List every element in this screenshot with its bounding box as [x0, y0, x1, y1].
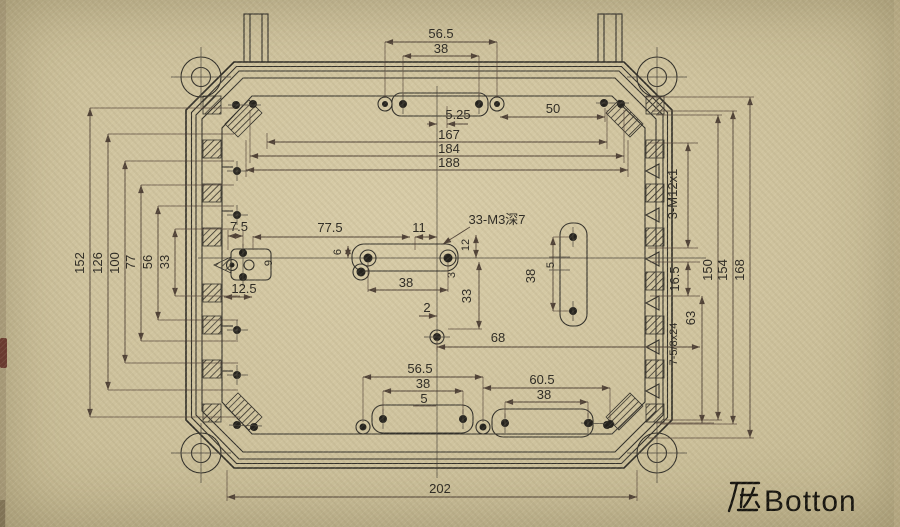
- dim-bottom-56-5: 56.5: [407, 361, 432, 376]
- screw-boss: [222, 320, 248, 340]
- dim-top-167: 167: [438, 127, 460, 142]
- dim-center-77-5: 77.5: [317, 220, 342, 235]
- bottom-wall-slots: [356, 405, 614, 437]
- dim-left-56: 56: [140, 255, 155, 269]
- dim-left-77: 77: [123, 255, 138, 269]
- center-slot: [352, 244, 458, 344]
- dim-right-150: 150: [700, 259, 715, 281]
- mounting-tab: [244, 14, 268, 62]
- callout-m3: 33-M3深7: [468, 212, 525, 227]
- mounting-ear: [171, 47, 231, 107]
- right-slot-dimensions: 38 5: [523, 237, 569, 311]
- dim-bracket-12-5: 12.5: [231, 281, 256, 296]
- dim-top-184: 184: [438, 141, 460, 156]
- dim-top-38: 38: [434, 41, 448, 56]
- dim-bracket-7-5: 7.5: [230, 219, 248, 234]
- center-dimensions: 77.5 11 33-M3深7 12 3 38 6 2 33 68: [253, 212, 700, 352]
- dim-center-68: 68: [491, 330, 505, 345]
- caption-text: Botton: [764, 485, 857, 518]
- dim-center-6: 6: [332, 249, 344, 255]
- dim-top-56-5: 56.5: [428, 26, 453, 41]
- mounting-tab: [598, 14, 622, 62]
- callout-gland: 7-5/8x24: [668, 323, 680, 366]
- dim-top-50: 50: [546, 101, 560, 116]
- mounting-ear: [627, 423, 687, 483]
- screw-boss: [222, 161, 248, 181]
- dim-left-33: 33: [157, 255, 172, 269]
- dim-left-152: 152: [72, 252, 87, 274]
- dim-bottom-5: 5: [420, 391, 427, 406]
- dim-right-63: 63: [683, 311, 698, 325]
- corner-screw-lugs: [225, 99, 643, 431]
- dim-rslot-38: 38: [523, 269, 538, 283]
- dim-center-12: 12: [460, 239, 472, 251]
- dim-top-5-25: 5.25: [445, 107, 470, 122]
- dim-bracket-9: 9: [263, 260, 275, 266]
- dim-bottom-38-left: 38: [416, 376, 430, 391]
- dim-right-16-5: 16.5: [667, 266, 682, 291]
- enclosure-body-outline: [186, 62, 672, 468]
- drawing-photo: 56.5 38 5.25 50 167 184 188 152 126 100: [0, 0, 900, 527]
- dim-center-33: 33: [459, 289, 474, 303]
- left-wall-bosses: [222, 161, 248, 385]
- left-wall-section: [203, 96, 221, 422]
- dim-center-11: 11: [412, 220, 426, 235]
- dim-center-38: 38: [399, 275, 413, 290]
- right-vertical-slot: [549, 223, 587, 326]
- dim-bottom-60-5: 60.5: [529, 372, 554, 387]
- screw-boss: [222, 365, 248, 385]
- dim-bottom-38-right: 38: [537, 387, 551, 402]
- bottom-dimensions: 56.5 38 5 60.5 38 202: [227, 361, 637, 501]
- right-wall-section: [646, 96, 664, 422]
- engineering-drawing: 56.5 38 5.25 50 167 184 188 152 126 100: [0, 0, 900, 527]
- dim-rslot-5: 5: [545, 262, 557, 268]
- dim-left-100: 100: [107, 252, 122, 274]
- view-caption: Botton: [729, 483, 857, 518]
- dim-bottom-202: 202: [429, 481, 451, 496]
- dim-top-188: 188: [438, 155, 460, 170]
- mounting-ear: [171, 423, 231, 483]
- cn-bottom-glyph: [729, 483, 759, 511]
- callout-m12: 3-M12x1: [665, 169, 680, 220]
- dim-right-154: 154: [715, 259, 730, 281]
- dim-center-2: 2: [423, 300, 430, 315]
- dim-right-168: 168: [732, 259, 747, 281]
- dim-left-126: 126: [90, 252, 105, 274]
